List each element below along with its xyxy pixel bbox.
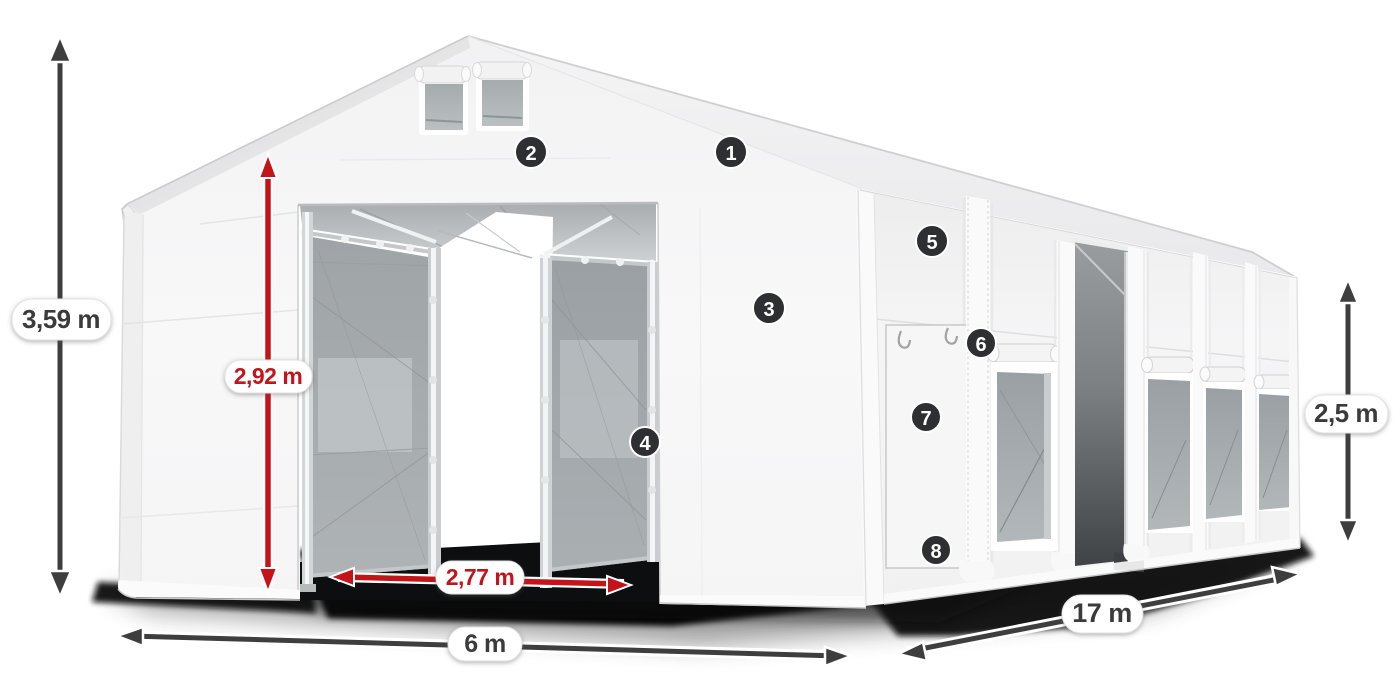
svg-text:8: 8: [930, 541, 941, 563]
svg-text:6: 6: [975, 334, 986, 356]
svg-text:2,92 m: 2,92 m: [234, 363, 303, 389]
svg-text:7: 7: [920, 408, 931, 430]
svg-text:2,5 m: 2,5 m: [1314, 398, 1378, 428]
svg-text:17 m: 17 m: [1072, 598, 1132, 628]
svg-text:2,77 m: 2,77 m: [446, 564, 515, 590]
svg-text:4: 4: [639, 433, 651, 455]
svg-text:3: 3: [763, 299, 774, 321]
svg-text:6 m: 6 m: [464, 630, 506, 658]
svg-text:1: 1: [725, 143, 736, 165]
svg-text:5: 5: [926, 232, 937, 254]
svg-text:2: 2: [525, 143, 536, 165]
svg-text:3,59 m: 3,59 m: [22, 304, 100, 334]
